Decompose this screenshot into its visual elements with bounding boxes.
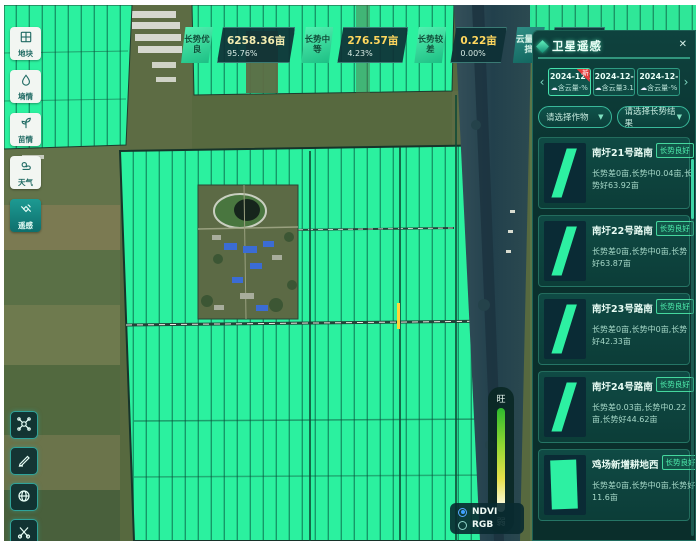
weather-icon <box>20 157 32 176</box>
legend-strong-label: 旺 <box>496 392 505 405</box>
drone-icon <box>17 416 31 435</box>
cloud-text: 含云量-% <box>647 84 677 92</box>
plot-list-item[interactable]: 鸡场新增耕地西长势良好 长势差0亩,长势中0亩,长势好11.6亩 <box>538 449 690 521</box>
sidebar-item-label: 地块 <box>18 48 33 59</box>
stat-value-card: 0.22亩 0.00% <box>450 27 506 63</box>
next-date-arrow[interactable]: › <box>682 75 690 89</box>
plot-body: 南圩23号路南长势良好 长势差0亩,长势中0亩,长势好42.33亩 <box>586 299 694 359</box>
sidebar-item-label: 天气 <box>18 177 33 188</box>
growth-filter-placeholder: 请选择长势结果 <box>625 105 677 129</box>
date-card[interactable]: 2024-12-14 ☁含云量-% <box>637 68 680 96</box>
pencil-icon <box>17 452 31 471</box>
ndvi-gradient-bar <box>497 408 505 512</box>
plot-body: 鸡场新增耕地西长势良好 长势差0亩,长势中0亩,长势好11.6亩 <box>586 455 696 515</box>
plot-body: 南圩22号路南长势良好 长势差0亩,长势中0亩,长势好63.87亩 <box>586 221 694 281</box>
field-shape-icon <box>548 147 582 199</box>
layer-label: RGB <box>472 520 493 530</box>
cloud-text: 含云量3.13% <box>602 84 636 92</box>
satellite-panel: 卫星遥感 ✕ ‹ 新 2024-12-24 ☁含云量-% 2024-12-19 … <box>532 30 696 541</box>
map-blocks-icon <box>20 28 32 47</box>
stat-label-chip: 长势优良 <box>181 27 213 63</box>
sidebar-item-remote-sensing[interactable]: 遥感 <box>10 199 41 232</box>
stat-percent: 95.76% <box>227 49 285 58</box>
stat-label-chip: 长势中等 <box>301 27 333 63</box>
close-icon[interactable]: ✕ <box>679 39 687 50</box>
sidebar-item-seedling[interactable]: 苗情 <box>10 113 41 146</box>
plot-body: 南圩21号路南长势良好 长势差0亩,长势中0.04亩,长势好63.92亩 <box>586 143 694 203</box>
radio-unselected-icon <box>458 521 467 530</box>
layer-toggle: NDVI RGB <box>450 503 524 534</box>
plot-title: 南圩24号路南 <box>592 379 653 393</box>
cloud-coverage: ☁含云量3.13% <box>595 83 634 93</box>
stat-group-medium: 长势中等 276.57亩 4.23% <box>301 27 408 63</box>
drone-tool-button[interactable] <box>10 411 38 439</box>
diamond-icon <box>536 40 549 53</box>
plot-stats: 长势差0.03亩,长势中0.22亩,长势好44.62亩 <box>592 402 694 427</box>
crop-filter-placeholder: 请选择作物 <box>546 111 589 123</box>
panel-scrollbar[interactable] <box>691 159 694 536</box>
stat-value: 6258.36亩 <box>227 33 285 48</box>
stat-value: 276.57亩 <box>347 33 398 48</box>
growth-status-badge: 长势良好 <box>656 221 694 236</box>
sidebar-item-label: 墒情 <box>18 91 33 102</box>
plot-list-item[interactable]: 南圩23号路南长势良好 长势差0亩,长势中0亩,长势好42.33亩 <box>538 293 690 365</box>
seedling-icon <box>20 114 32 133</box>
satellite-icon <box>20 200 32 219</box>
sidebar-item-label: 遥感 <box>18 220 33 231</box>
growth-status-badge: 长势良好 <box>656 377 694 392</box>
layer-option-rgb[interactable]: RGB <box>458 520 516 530</box>
stat-percent: 4.23% <box>347 49 398 58</box>
date-carousel: ‹ 新 2024-12-24 ☁含云量-% 2024-12-19 ☁含云量3.1… <box>538 68 690 96</box>
sidebar-item-moisture[interactable]: 墒情 <box>10 70 41 103</box>
plot-thumbnail <box>544 299 586 359</box>
plot-list-item[interactable]: 南圩21号路南长势良好 长势差0亩,长势中0.04亩,长势好63.92亩 <box>538 137 690 209</box>
stat-value-card: 6258.36亩 95.76% <box>217 27 295 63</box>
plot-title: 南圩21号路南 <box>592 145 653 159</box>
filter-row: 请选择作物 ▼ 请选择长势结果 ▼ <box>538 106 690 128</box>
cloud-coverage: ☁含云量-% <box>550 83 589 93</box>
map-container: 长势优良 6258.36亩 95.76% 长势中等 276.57亩 4.23% … <box>4 5 696 541</box>
growth-filter-select[interactable]: 请选择长势结果 ▼ <box>617 106 691 128</box>
panel-header: 卫星遥感 ✕ <box>538 35 690 59</box>
stat-label-chip: 长势较差 <box>414 27 446 63</box>
plot-title: 南圩23号路南 <box>592 301 653 315</box>
date-card[interactable]: 新 2024-12-24 ☁含云量-% <box>548 68 591 96</box>
date-card[interactable]: 2024-12-19 ☁含云量3.13% <box>593 68 636 96</box>
cloud-coverage: ☁含云量-% <box>639 83 678 93</box>
plot-thumbnail <box>544 221 586 281</box>
field-shape-icon <box>548 225 582 277</box>
chevron-down-icon: ▼ <box>677 113 682 121</box>
sidebar-item-plots[interactable]: 地块 <box>10 27 41 60</box>
globe-icon <box>17 488 31 507</box>
plot-stats: 长势差0亩,长势中0亩,长势好42.33亩 <box>592 324 694 349</box>
growth-status-badge: 长势良好 <box>656 143 694 158</box>
map-tools <box>10 411 38 541</box>
plot-stats: 长势差0亩,长势中0亩,长势好11.6亩 <box>592 480 696 505</box>
plot-title: 南圩22号路南 <box>592 223 653 237</box>
growth-status-badge: 长势良好 <box>656 299 694 314</box>
cloud-icon: ☁ <box>595 84 602 92</box>
plot-list-item[interactable]: 南圩22号路南长势良好 长势差0亩,长势中0亩,长势好63.87亩 <box>538 215 690 287</box>
plot-thumbnail <box>544 143 586 203</box>
draw-tool-button[interactable] <box>10 447 38 475</box>
radio-selected-icon <box>458 508 467 517</box>
prev-date-arrow[interactable]: ‹ <box>538 75 546 89</box>
sidebar-nav: 地块 墒情 苗情 天气 <box>10 27 41 232</box>
plot-body: 南圩24号路南长势良好 长势差0.03亩,长势中0.22亩,长势好44.62亩 <box>586 377 694 437</box>
cloud-icon: ☁ <box>551 84 558 92</box>
plot-stats: 长势差0亩,长势中0.04亩,长势好63.92亩 <box>592 168 694 193</box>
date-label: 2024-12-19 <box>595 72 634 81</box>
plot-title: 鸡场新增耕地西 <box>592 457 659 471</box>
scissors-icon <box>17 524 31 542</box>
date-label: 2024-12-14 <box>639 72 678 81</box>
plot-thumbnail <box>544 455 586 515</box>
stat-value-card: 276.57亩 4.23% <box>337 27 408 63</box>
sidebar-item-label: 苗情 <box>18 134 33 145</box>
field-shape-icon <box>550 460 578 510</box>
field-shape-icon <box>548 381 582 433</box>
plot-stats: 长势差0亩,长势中0亩,长势好63.87亩 <box>592 246 694 271</box>
layer-option-ndvi[interactable]: NDVI <box>458 507 516 517</box>
field-shape-icon <box>548 303 582 355</box>
droplet-icon <box>20 71 32 90</box>
plot-thumbnail <box>544 377 586 437</box>
plot-list: 南圩21号路南长势良好 长势差0亩,长势中0.04亩,长势好63.92亩 南圩2… <box>538 137 690 521</box>
stat-group-poor: 长势较差 0.22亩 0.00% <box>414 27 506 63</box>
village-area <box>198 185 298 319</box>
measure-tool-button[interactable] <box>10 519 38 541</box>
globe-tool-button[interactable] <box>10 483 38 511</box>
cloud-text: 含云量-% <box>558 84 588 92</box>
panel-title: 卫星遥感 <box>552 38 602 54</box>
sidebar-item-weather[interactable]: 天气 <box>10 156 41 189</box>
chevron-down-icon: ▼ <box>598 113 603 121</box>
crop-filter-select[interactable]: 请选择作物 ▼ <box>538 106 612 128</box>
layer-label: NDVI <box>472 507 497 517</box>
stat-value: 0.22亩 <box>460 33 496 48</box>
app-window: 长势优良 6258.36亩 95.76% 长势中等 276.57亩 4.23% … <box>0 0 700 550</box>
plot-list-item[interactable]: 南圩24号路南长势良好 长势差0.03亩,长势中0.22亩,长势好44.62亩 <box>538 371 690 443</box>
stat-group-excellent: 长势优良 6258.36亩 95.76% <box>181 27 295 63</box>
stat-percent: 0.00% <box>460 49 496 58</box>
